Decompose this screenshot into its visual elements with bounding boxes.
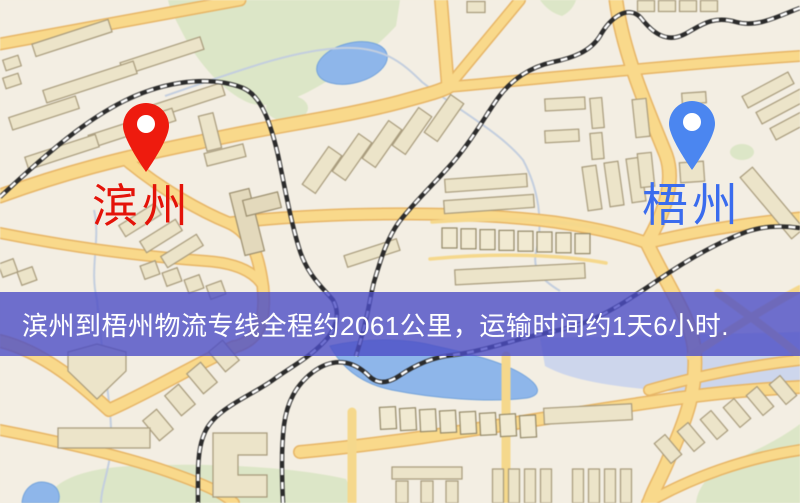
markers-overlay: 滨州 梧州 <box>0 0 800 503</box>
origin-label: 滨州 <box>92 181 192 232</box>
map-screenshot: 滨州到梧州物流专线全程约2061公里，运输时间约1天6小时. 滨州 梧州 <box>0 0 800 503</box>
origin-pin-icon <box>123 103 169 172</box>
destination-label: 梧州 <box>642 180 742 231</box>
destination-pin-icon <box>669 101 715 170</box>
